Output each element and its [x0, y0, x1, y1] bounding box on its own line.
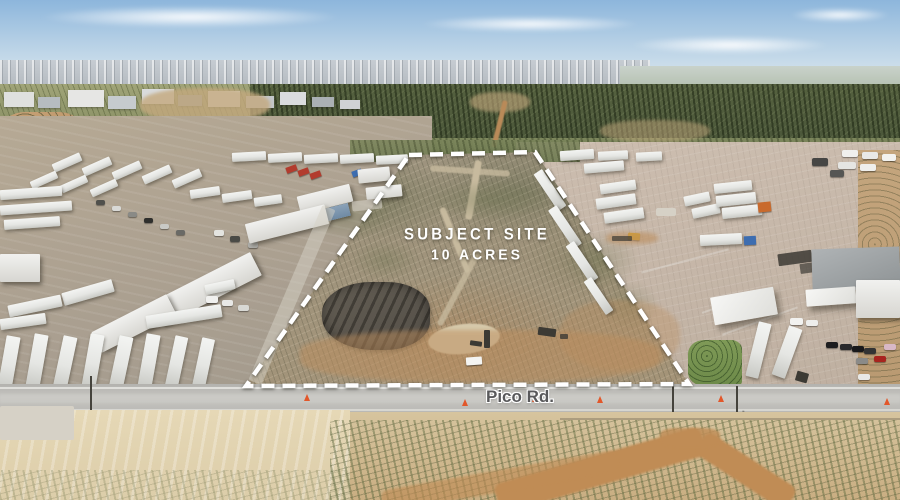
car [874, 356, 886, 362]
truck-cab [238, 305, 249, 311]
warehouse [38, 97, 60, 108]
utility-pole [672, 382, 674, 412]
cloud [40, 6, 340, 28]
vehicle [128, 212, 137, 217]
trailer [304, 153, 338, 164]
blue-truck [744, 236, 756, 246]
road-name-label: Pico Rd. [440, 387, 600, 407]
orange-container [758, 201, 772, 212]
vehicle [112, 206, 121, 211]
rv [862, 152, 878, 159]
dirt-track [660, 428, 720, 448]
rv [860, 164, 876, 171]
site-label-line1: SUBJECT SITE [340, 225, 614, 243]
fence-line [560, 418, 900, 420]
metal-building [0, 254, 40, 282]
rv [842, 150, 858, 157]
equipment [612, 236, 632, 241]
trailer [598, 150, 628, 161]
shade-canopy [805, 286, 856, 306]
concrete-drive [0, 406, 74, 440]
pickup-truck [466, 356, 483, 365]
cloud [630, 36, 830, 54]
trailer [232, 151, 266, 162]
van [790, 318, 803, 325]
trailer [700, 233, 743, 246]
warehouse [4, 92, 34, 107]
office-building [856, 280, 900, 318]
rv [882, 154, 896, 161]
trailer [376, 154, 408, 165]
truck-cab [206, 296, 218, 303]
drill-rig [484, 330, 490, 348]
trailer [636, 151, 662, 161]
car [852, 346, 864, 352]
vehicle [214, 230, 224, 236]
cloud [420, 16, 640, 32]
tan-patch [600, 120, 710, 142]
warehouse [312, 97, 334, 107]
car [864, 348, 876, 354]
trailer [340, 153, 374, 164]
utility-pole [90, 376, 92, 410]
van [806, 320, 818, 326]
vehicle [96, 200, 105, 205]
aerial-photo: SUBJECT SITE 10 ACRES Pico Rd. [0, 0, 900, 500]
trailer [268, 152, 302, 163]
vehicle [812, 158, 828, 166]
equipment [560, 334, 568, 339]
car [884, 344, 896, 350]
warehouse [280, 92, 306, 105]
vehicle [830, 170, 844, 177]
moss-patch [430, 180, 550, 220]
vehicle [230, 236, 240, 242]
car [826, 342, 838, 348]
site-label-line2: 10 ACRES [340, 245, 614, 262]
utility-pole [736, 386, 738, 412]
grass-patch [688, 340, 742, 386]
concrete-pad [656, 208, 676, 216]
car [840, 344, 852, 350]
vehicle [176, 230, 185, 235]
cloud [790, 8, 890, 22]
vehicle [144, 218, 153, 223]
warehouse [340, 100, 360, 109]
truck-cab [222, 300, 233, 306]
car [856, 358, 868, 364]
rv [838, 162, 856, 169]
orange-dirt [560, 300, 680, 370]
vehicle [160, 224, 169, 229]
site-label: SUBJECT SITE 10 ACRES [340, 226, 614, 262]
warehouse [68, 90, 104, 107]
foreground-scrub [0, 470, 350, 500]
warehouse [108, 96, 136, 109]
car [858, 374, 870, 380]
